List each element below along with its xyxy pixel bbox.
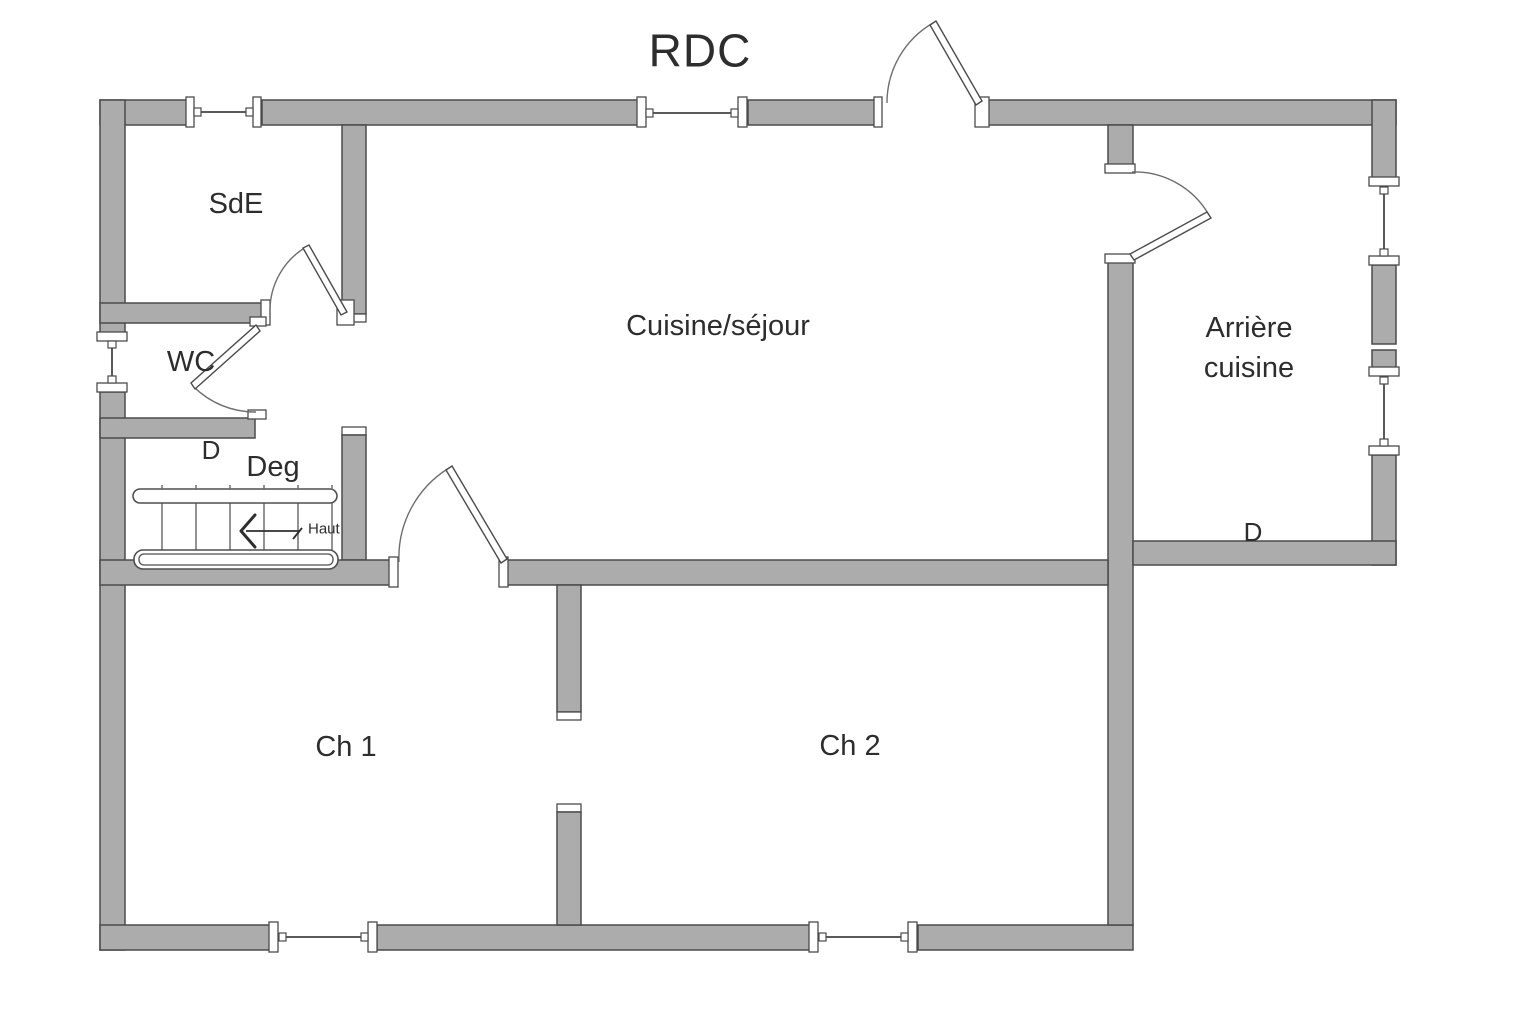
wall-divider-deg-lower	[342, 435, 366, 560]
stair-handrail-bottom	[134, 550, 338, 569]
wall-top-4	[988, 100, 1396, 125]
window-wc-left	[97, 332, 127, 392]
window-cuisine-top	[637, 97, 747, 127]
door-label-arriere: D	[1244, 515, 1263, 551]
door-entrance	[874, 21, 989, 127]
wall-arriere-right-1	[1372, 100, 1396, 178]
floor-plan: RDC SdE WC D Deg Cuisine/séjour Arrière …	[0, 0, 1536, 1024]
wall-left-1	[100, 100, 125, 333]
room-label-arriere-line1: Arrière	[1204, 308, 1294, 348]
window-ch1-bottom	[269, 922, 377, 952]
exterior-walls	[100, 100, 1396, 950]
wall-cap	[342, 427, 366, 435]
stair-handrail-top	[133, 489, 337, 503]
window-arriere-right-2	[1369, 367, 1399, 455]
stair-direction-label: Haut	[308, 520, 340, 541]
door-chambres	[389, 466, 508, 587]
room-label-sde: SdE	[209, 184, 264, 224]
wall-divider-deg-upper	[342, 125, 366, 314]
room-label-arriere-line2: cuisine	[1204, 348, 1294, 388]
door-sde	[261, 245, 354, 325]
door-arriere-cuisine	[1105, 164, 1211, 263]
wall-wc-bottom	[100, 418, 255, 438]
window-arriere-right-1	[1369, 177, 1399, 265]
wall-divider-ch-upper	[557, 585, 581, 712]
window-sde-top	[186, 97, 261, 127]
room-label-ch2: Ch 2	[819, 726, 880, 766]
wall-top-2	[262, 100, 638, 125]
stair-direction-arrow	[241, 515, 302, 547]
wall-arriere-right-2	[1372, 265, 1396, 344]
room-label-wc: WC	[167, 342, 215, 382]
wall-arriere-right-3	[1372, 350, 1396, 368]
room-label-ch1: Ch 1	[315, 727, 376, 767]
room-label-deg: Deg	[246, 447, 299, 487]
wall-cap	[557, 712, 581, 720]
window-ch2-bottom	[809, 922, 917, 952]
wall-bottom-2	[377, 925, 810, 950]
wall-top-3	[748, 100, 881, 125]
interior-walls	[100, 125, 1108, 925]
wall-bottom-3	[918, 925, 1133, 950]
wall-right-main-lower	[1108, 257, 1133, 925]
floor-title: RDC	[649, 19, 752, 82]
wall-bottom-1	[100, 925, 270, 950]
door-label-deg: D	[202, 433, 221, 469]
room-label-cuisine-sejour: Cuisine/séjour	[626, 306, 810, 346]
wall-sde-bottom	[100, 303, 262, 323]
wall-arriere-bottom	[1133, 541, 1396, 565]
floor-plan-drawing	[0, 0, 1536, 1024]
wall-left-2	[100, 392, 125, 950]
wall-cap	[557, 804, 581, 812]
wall-divider-ch-lower	[557, 812, 581, 925]
wall-mid-right	[507, 560, 1108, 585]
room-label-arriere-cuisine: Arrière cuisine	[1204, 308, 1294, 388]
